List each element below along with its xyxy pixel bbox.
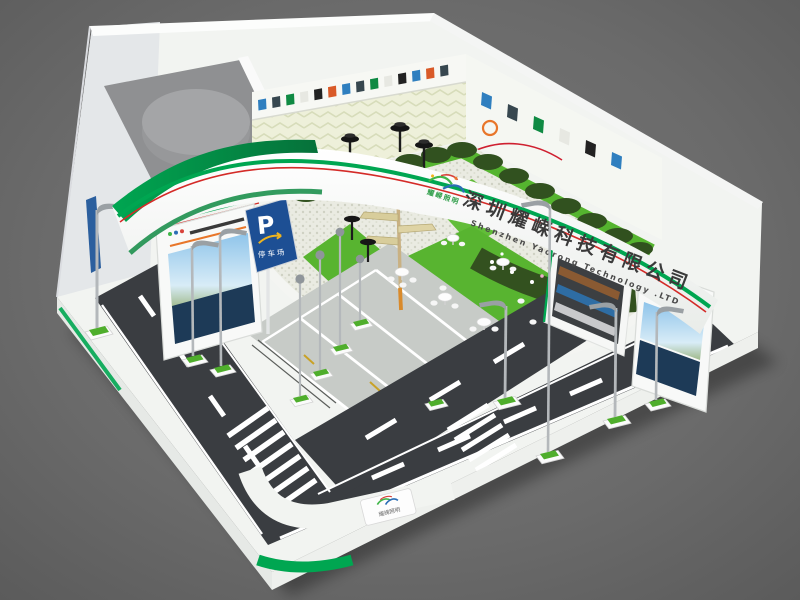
cafe-chair (399, 282, 406, 287)
cafe-chair (430, 300, 437, 305)
cafe-chair (409, 277, 416, 282)
booth-render: 耀嵘照明 (0, 0, 800, 600)
cafe-chair (517, 298, 524, 303)
cafe-chair (491, 326, 498, 331)
cafe-chair (510, 267, 517, 272)
cafe-chair (490, 266, 497, 271)
booth-scene: 耀嵘照明 (0, 0, 800, 600)
cafe-chair (459, 242, 465, 247)
wall-poster-left (156, 204, 262, 360)
cafe-chair (439, 285, 446, 290)
cafe-chair (469, 326, 476, 331)
cafe-chair (451, 303, 458, 308)
cafe-chair (387, 276, 394, 281)
cafe-chair (441, 241, 447, 246)
cafe-chair (529, 319, 536, 324)
